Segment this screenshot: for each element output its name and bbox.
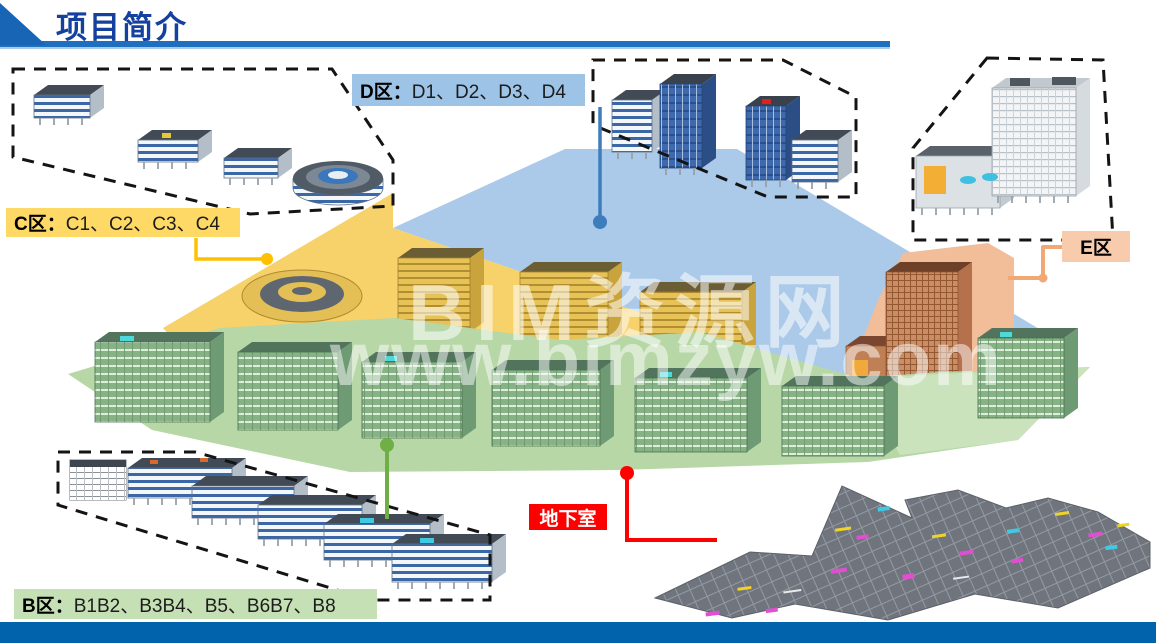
b-zone-label: B区： B1B2、B3B4、B5、B6B7、B8 (14, 589, 377, 619)
c-connector (196, 238, 273, 265)
c-zone-label-prefix: C区： (14, 209, 66, 236)
d-zone-label-items: D1、D2、D3、D4 (412, 77, 566, 104)
footer-bar (0, 622, 1156, 643)
header-rule-light (0, 47, 890, 49)
basement-label: 地下室 (529, 504, 607, 530)
c-zone-label: C区： C1、C2、C3、C4 (6, 208, 240, 237)
e-zone-label: E区 (1062, 231, 1130, 262)
e-connector (1008, 247, 1062, 283)
d-zone-label: D区： D1、D2、D3、D4 (352, 74, 585, 106)
page-title: 项目简介 (56, 2, 188, 47)
slide: 项目简介 (0, 0, 1156, 643)
c-zone-label-items: C1、C2、C3、C4 (66, 209, 220, 236)
basement-connector (620, 466, 717, 540)
b-cluster-illustration (58, 452, 506, 600)
d-zone-label-prefix: D区： (360, 77, 412, 104)
b-zone-label-prefix: B区： (22, 591, 74, 618)
b-elevation-drawing (70, 460, 126, 500)
c-round-building (293, 161, 383, 205)
basement-model (655, 473, 1150, 621)
header-corner-triangle-icon (0, 3, 46, 45)
c-cluster-illustration (13, 69, 393, 214)
b-zone-label-items: B1B2、B3B4、B5、B6B7、B8 (74, 591, 336, 618)
e-cluster-illustration (913, 58, 1113, 240)
